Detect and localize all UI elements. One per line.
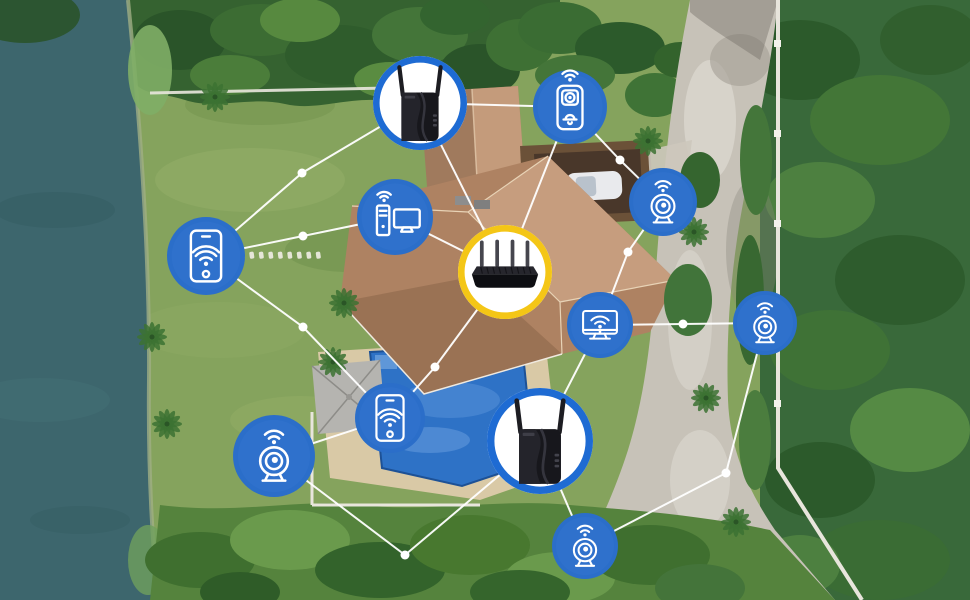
- security-camera-right: [733, 291, 797, 355]
- junction-dot: [299, 323, 308, 332]
- smartphone-left: [167, 217, 245, 295]
- desktop-computer: [357, 179, 433, 255]
- stepping-stones: [240, 251, 321, 259]
- junction-dot: [616, 156, 625, 165]
- video-doorbell: [533, 70, 607, 144]
- junction-dot: [431, 363, 440, 372]
- security-camera-left: [233, 415, 315, 497]
- aerial-mesh-wifi-diagram: [0, 0, 970, 600]
- junction-dot: [624, 248, 633, 257]
- junction-dot: [679, 320, 688, 329]
- security-camera-bottom: [552, 513, 618, 579]
- security-camera-top-right: [629, 168, 697, 236]
- wifi-extender-bottom: [487, 388, 593, 494]
- wifi-router: [458, 225, 552, 319]
- smart-tv-monitor: [567, 292, 633, 358]
- smartphone-poolside: [355, 383, 425, 453]
- junction-dot: [298, 169, 307, 178]
- junction-dot: [722, 469, 731, 478]
- wifi-extender-top: [373, 56, 467, 150]
- junction-dot: [401, 551, 410, 560]
- junction-dot: [299, 232, 308, 241]
